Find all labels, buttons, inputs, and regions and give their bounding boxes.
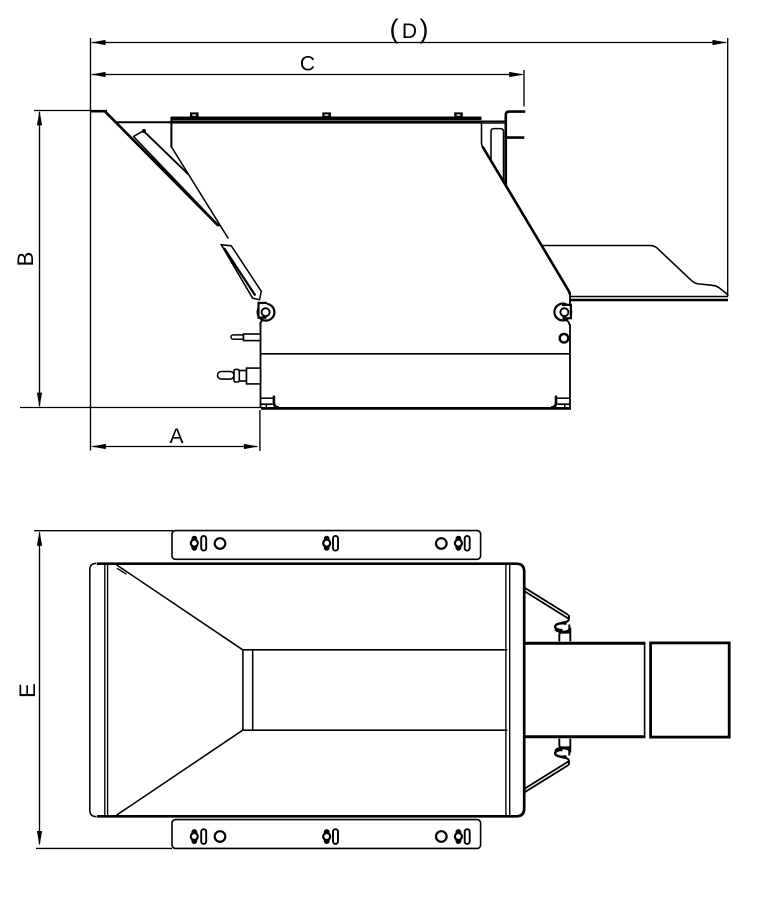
svg-text:A: A xyxy=(169,425,183,448)
svg-text:C: C xyxy=(300,53,315,76)
svg-text:(: ( xyxy=(390,14,399,44)
svg-text:D: D xyxy=(402,20,417,43)
svg-text:): ) xyxy=(420,14,429,44)
svg-text:B: B xyxy=(13,252,38,267)
svg-text:E: E xyxy=(15,683,40,698)
